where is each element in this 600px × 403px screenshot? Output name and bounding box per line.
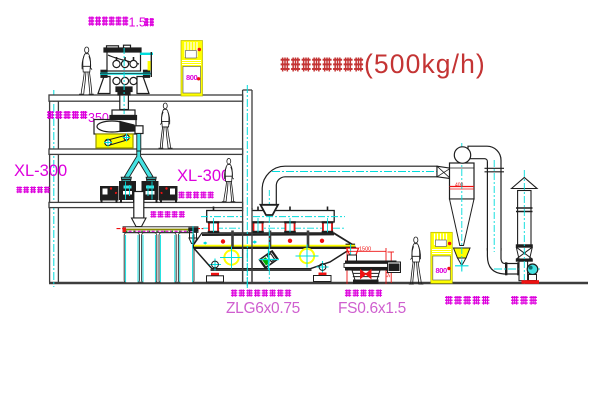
svg-text:XL-300: XL-300 bbox=[177, 167, 230, 185]
svg-text:ZLG6x0.75: ZLG6x0.75 bbox=[226, 300, 300, 317]
svg-text:800: 800 bbox=[186, 73, 198, 82]
svg-text:1.5: 1.5 bbox=[129, 16, 146, 30]
svg-text:FS0.6x1.5: FS0.6x1.5 bbox=[338, 300, 406, 317]
svg-text:400: 400 bbox=[455, 183, 464, 189]
svg-text:800: 800 bbox=[436, 266, 448, 275]
svg-text:1500: 1500 bbox=[359, 247, 371, 253]
svg-text:XL-300: XL-300 bbox=[14, 162, 67, 180]
svg-text:(500kg/h): (500kg/h) bbox=[364, 49, 486, 79]
